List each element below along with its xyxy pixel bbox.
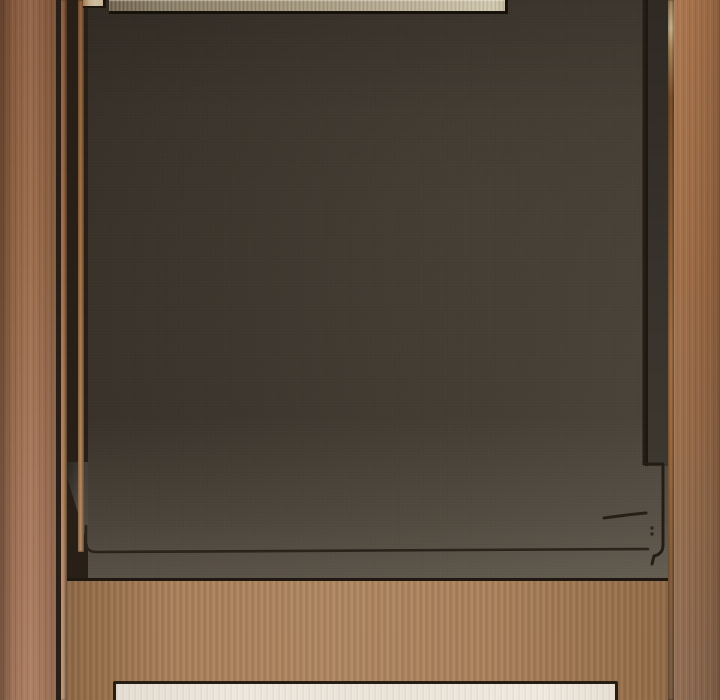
panel-seam-lines [0, 0, 720, 700]
door-bottom-seam-line [86, 526, 648, 552]
appliance-door-photo [0, 0, 720, 700]
seam-dot-upper [650, 526, 653, 529]
seam-dot-lower [650, 532, 653, 535]
latch-detail-line [604, 513, 646, 518]
cabinet-right-stile [674, 0, 720, 700]
door-right-seam-line [644, 0, 663, 564]
